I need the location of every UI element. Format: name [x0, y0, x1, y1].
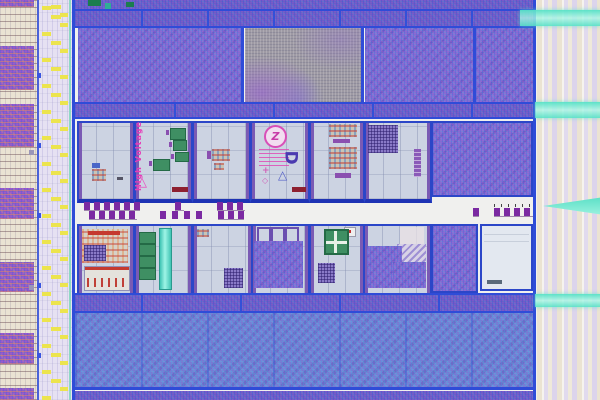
capacitor-array: [368, 125, 398, 153]
io-cell-block: [0, 333, 34, 364]
tick-label: [166, 130, 169, 135]
probe-pad-cluster: [473, 208, 479, 216]
cyan-power-band: [520, 10, 600, 26]
probe-pad-cluster: [84, 202, 140, 210]
green-capacitor: [153, 159, 170, 171]
cell-divider: [339, 11, 341, 26]
h-rail: [75, 117, 533, 119]
filler-cell-row: [75, 295, 533, 311]
test-tile: [251, 224, 310, 299]
red-bar: [88, 231, 120, 235]
tile-id-label: [172, 187, 188, 192]
red-bar: [85, 267, 129, 270]
alignment-mark: [29, 150, 34, 155]
logic-block: [78, 28, 241, 102]
cross-mark: +: [262, 167, 270, 176]
v-rail: [241, 28, 244, 102]
io-routing-strip: [37, 0, 72, 400]
green-capacitor: [139, 244, 156, 256]
alignment-mark: [29, 285, 34, 290]
mini-grid: [329, 147, 357, 169]
chip-die-photo: High Voltage △ Z D + ◇ △: [0, 0, 600, 400]
empty-test-tile: [480, 224, 533, 291]
diamond-mark: ◇: [262, 177, 268, 185]
green-marker: [88, 0, 101, 6]
tap-mark: [37, 143, 41, 148]
mini-grid: [197, 229, 209, 237]
tile-label: [335, 173, 351, 178]
green-capacitor: [139, 256, 156, 268]
test-tile: [77, 121, 135, 203]
cell-divider: [405, 11, 407, 26]
probe-pad-ticks: [494, 204, 534, 207]
cell-divider: [438, 295, 440, 311]
io-cell-block: [0, 0, 34, 7]
mini-grid: [214, 163, 224, 170]
test-tile-high-voltage: High Voltage △: [134, 121, 193, 203]
metal-test-bar: [159, 228, 172, 290]
tile-id-label: [487, 280, 502, 284]
test-tile: [192, 121, 251, 203]
cell-divider: [207, 11, 209, 26]
test-tile-logo: Z D + ◇ △: [250, 121, 310, 203]
probe-pad-cluster: [218, 211, 244, 219]
green-quad-capacitor: [324, 229, 349, 255]
power-grid-lines: [75, 313, 533, 387]
cell-divider: [273, 11, 275, 26]
cyan-power-band: [535, 102, 600, 118]
cyan-power-band: [535, 294, 600, 307]
probe-pad-cluster: [217, 202, 245, 210]
core-area: High Voltage △ Z D + ◇ △: [75, 0, 533, 400]
yellow-pad-marks: [42, 0, 51, 400]
probe-pad-cluster: [494, 208, 534, 216]
test-tile: [192, 224, 253, 299]
green-capacitor: [173, 140, 187, 151]
probe-mark: [117, 177, 123, 180]
cell-divider: [273, 104, 275, 117]
test-tile: [309, 224, 365, 299]
tick-label: [171, 154, 174, 159]
cell-divider: [339, 295, 341, 311]
top-seal-row: [75, 0, 533, 9]
logic-block: [431, 224, 478, 293]
tile-label: [333, 139, 350, 143]
strip-border-line: [37, 0, 39, 400]
probe-pad-cluster: [89, 211, 137, 219]
green-capacitor: [175, 152, 189, 162]
bottom-seal-row: [75, 391, 533, 400]
test-tile: [363, 224, 432, 299]
io-cell-block: [0, 188, 34, 219]
logic-block: [365, 28, 473, 102]
cell-divider: [372, 104, 374, 117]
capacitor-array: [224, 268, 243, 288]
tick-label: [169, 142, 172, 147]
filler-cell-row: [75, 11, 533, 26]
test-tile: [134, 224, 193, 299]
v-rail: [361, 28, 364, 102]
h-rail: [75, 387, 533, 390]
tile-id-label: [292, 187, 306, 192]
tap-mark: [37, 353, 41, 358]
green-capacitor: [139, 232, 156, 244]
red-ticks: [87, 278, 127, 287]
io-cell-block: [0, 388, 34, 400]
cell-divider: [174, 104, 176, 117]
dense-l-arm: [393, 262, 426, 288]
delta-mark: △: [278, 169, 287, 181]
test-tile: [364, 121, 432, 203]
probe-pad-cluster: [160, 211, 204, 219]
core-border-right: [533, 0, 536, 400]
io-cell-block: [0, 46, 34, 90]
via-chain: [414, 149, 421, 177]
io-cell-block: [0, 104, 34, 147]
tick-label: [207, 151, 211, 159]
green-capacitor: [170, 128, 186, 140]
sram-array: [245, 28, 361, 102]
logic-block: [476, 28, 533, 102]
strip-cyan-line: [69, 0, 71, 400]
pad-frame-left: [0, 0, 38, 400]
mini-grid: [212, 149, 230, 161]
tick-label: [149, 161, 152, 166]
probe-pad-cluster: [175, 202, 184, 210]
rotated-letter-d: D: [282, 150, 299, 164]
cell-divider: [471, 104, 473, 117]
faint-rows: [484, 228, 529, 242]
test-tile: [77, 224, 135, 299]
cell-divider: [471, 11, 473, 26]
red-test-struct: [84, 266, 130, 291]
logic-block-bottom: [75, 313, 533, 387]
capacitor-array: [318, 263, 335, 283]
cell-divider: [141, 11, 143, 26]
blue-struct: [92, 163, 100, 168]
yellow-pad-marks: [60, 0, 68, 400]
mini-grid: [92, 169, 106, 181]
warning-triangle-icon: △: [137, 176, 147, 189]
tap-mark: [37, 73, 41, 78]
test-tile: [309, 121, 365, 203]
logic-block: [431, 121, 533, 197]
tap-mark: [37, 283, 41, 288]
mini-grid: [329, 124, 357, 137]
filler-cell-row: [75, 104, 533, 117]
cell-divider: [240, 295, 242, 311]
fab-logo-badge: Z: [264, 125, 287, 148]
resistor-grid: [82, 229, 128, 263]
dense-fill: [254, 241, 303, 288]
sub-grid: [84, 245, 106, 261]
cell-divider: [141, 295, 143, 311]
tap-mark: [37, 213, 41, 218]
green-marker: [126, 2, 134, 7]
green-capacitor: [139, 268, 156, 280]
